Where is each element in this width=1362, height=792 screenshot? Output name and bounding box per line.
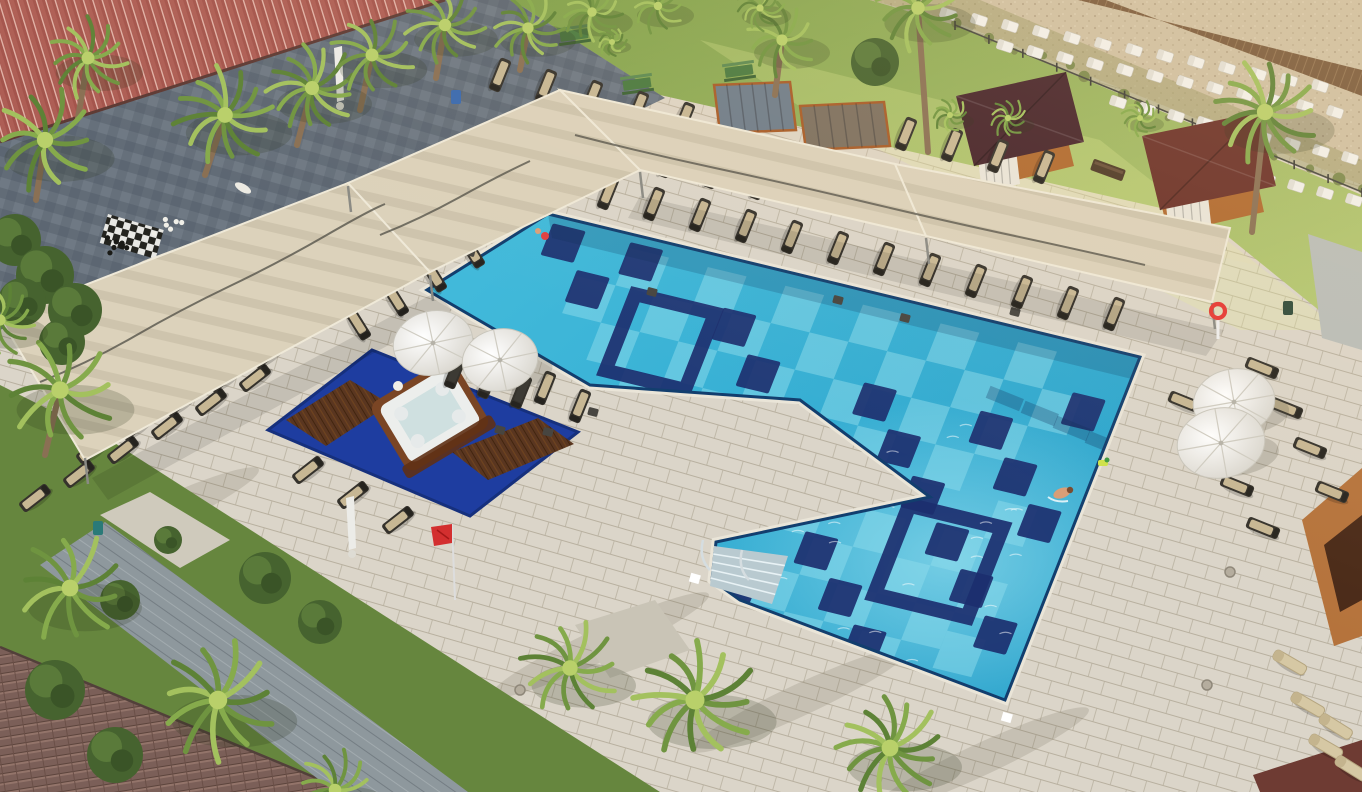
drain [1225,567,1235,577]
trash-bin [1283,301,1293,315]
aerial-resort-pool-photo [0,0,1362,792]
bush [851,38,899,86]
deck-drain [515,685,525,695]
drain [515,685,525,695]
wooden-pergola [800,102,890,150]
bush [239,552,291,604]
trash-bin [451,90,461,104]
bush [154,526,182,554]
bush [39,319,85,365]
deck-drain [1225,567,1235,577]
bush [298,600,342,644]
trash-bin [93,521,103,535]
scene-canvas [0,0,1362,792]
bush [87,727,143,783]
bush [25,660,85,720]
drain [1202,680,1212,690]
deck-drain [1202,680,1212,690]
wooden-pergola [714,82,796,133]
